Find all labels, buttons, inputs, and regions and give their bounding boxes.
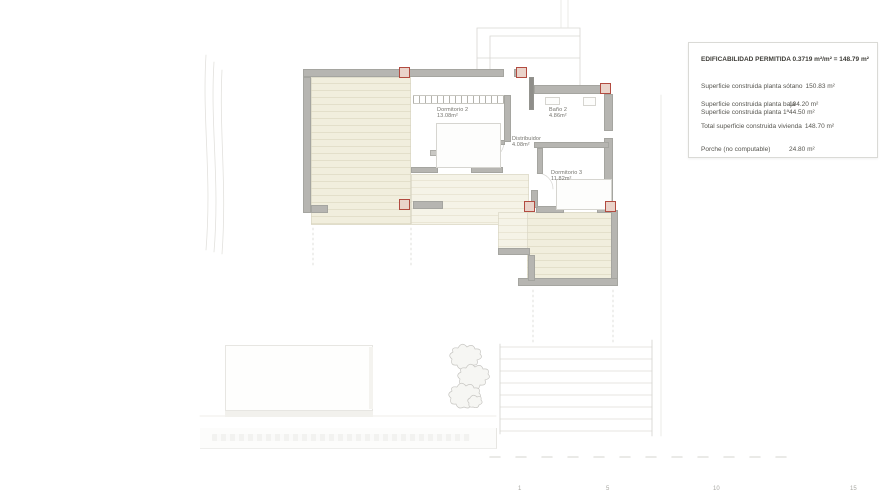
wall-left-bottom-stub	[311, 205, 328, 213]
legend-value: 148.70 m²	[805, 123, 834, 131]
legend-value: 24.80 m²	[789, 146, 815, 154]
stair-edges	[500, 340, 652, 436]
legend-row-porche: Porche (no computable) 24.80 m²	[701, 146, 869, 154]
stair-step-lines	[500, 347, 652, 431]
wall-east-upper	[604, 94, 613, 131]
terrace-deck-left	[311, 77, 411, 225]
bed-outline-dormitorio2	[436, 123, 501, 168]
bath-toilet	[583, 97, 596, 106]
title-band-text-smudge	[212, 434, 470, 441]
terrace-deck-step	[498, 212, 528, 252]
bed-outline-dormitorio3	[556, 179, 612, 210]
pool-shadow	[225, 411, 373, 417]
pillar-marker	[399, 67, 410, 78]
legend-value: 150.83 m²	[806, 83, 835, 91]
window-hatch-bed2	[413, 95, 504, 104]
terrace-deck-right	[527, 212, 613, 280]
pool-outline	[225, 345, 373, 411]
legend-row-planta1: Superficie construida planta 1ª 44.50 m²	[701, 109, 869, 117]
room-area: 13.08m²	[437, 113, 468, 119]
pillar-marker	[524, 201, 535, 212]
legend-box: EDIFICABILIDAD PERMITIDA 0.3719 m²/m² = …	[688, 42, 878, 158]
pillar-marker	[600, 83, 611, 94]
wall-bath-south	[534, 142, 609, 148]
legend-label: Superficie construida planta baja	[701, 101, 789, 109]
legend-value: 104.20 m²	[789, 101, 818, 109]
wall-bed2-south-left	[411, 167, 438, 173]
legend-value: 44.50 m²	[789, 109, 815, 117]
pillar-marker	[605, 201, 616, 212]
legend-label: Total superficie construida vivienda	[701, 123, 802, 131]
pool-edge-shade	[369, 347, 373, 409]
wall-porch-stub	[413, 201, 443, 209]
wall-terrace-east	[611, 210, 618, 282]
scale-tick-15: 15	[850, 486, 857, 492]
bath-sink	[545, 97, 560, 105]
legend-label: Porche (no computable)	[701, 146, 789, 154]
legend-title: EDIFICABILIDAD PERMITIDA 0.3719 m²/m² = …	[701, 56, 869, 64]
legend-row-sotano: Superficie construida planta sótano 150.…	[701, 83, 869, 91]
tree-scribble	[449, 344, 490, 408]
room-area: 11.82m²	[551, 176, 582, 182]
contour-lines	[205, 55, 224, 254]
room-area: 4.08m²	[512, 142, 541, 148]
pillar-marker	[399, 199, 410, 210]
room-label-dormitorio3: Dormitorio 3 11.82m²	[551, 170, 582, 182]
room-label-bano2: Baño 2 4.86m²	[549, 107, 567, 119]
legend-row-baja: Superficie construida planta baja 104.20…	[701, 101, 869, 109]
room-label-dormitorio2: Dormitorio 2 13.08m²	[437, 107, 468, 119]
wall-terrace-step-h	[498, 248, 530, 255]
legend-label: Superficie construida planta 1ª	[701, 109, 789, 117]
wall-bed2-east	[504, 95, 511, 142]
pillar-marker	[516, 67, 527, 78]
room-area: 4.86m²	[549, 113, 567, 119]
wall-terrace-step-v	[528, 255, 535, 281]
scale-tick-1: 1	[518, 486, 521, 492]
room-label-distribuidor: Distribuidor 4.08m²	[512, 136, 541, 148]
scale-tick-10: 10	[713, 486, 720, 492]
wall-bed3-west-upper	[537, 148, 543, 174]
floor-plan-canvas: Dormitorio 2 13.08m² Distribuidor 4.08m²…	[0, 0, 890, 500]
scale-tick-5: 5	[606, 486, 609, 492]
wall-left	[303, 77, 311, 213]
legend-label: Superficie construida planta sótano	[701, 83, 803, 91]
legend-row-total: Total superficie construida vivienda 148…	[701, 123, 869, 131]
